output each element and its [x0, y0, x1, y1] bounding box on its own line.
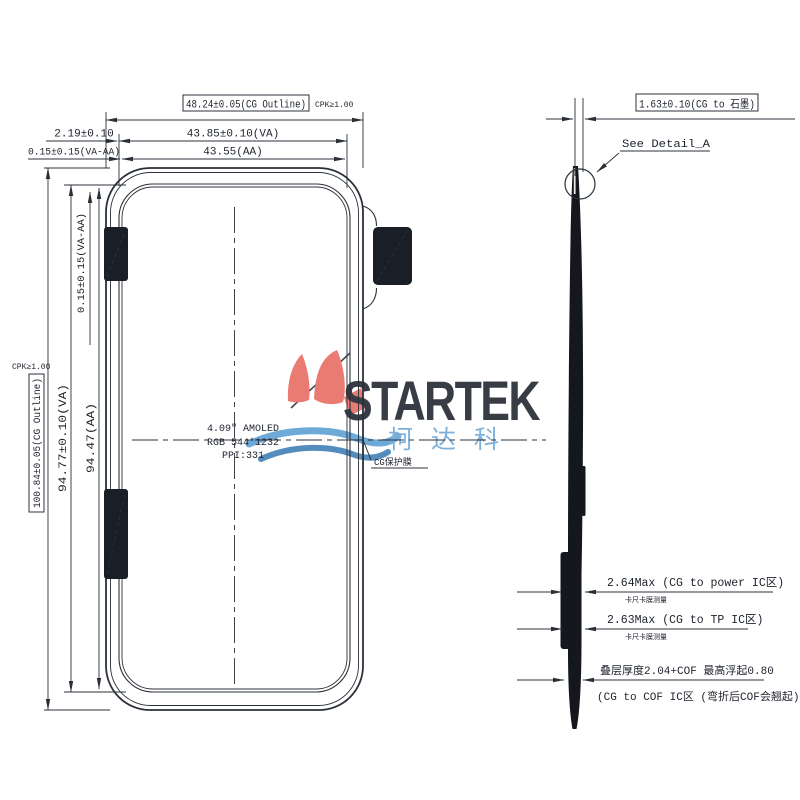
detail-a-callout: [565, 151, 710, 199]
side-view-profile: [561, 166, 586, 729]
cg-film-label: CG保护膜: [374, 456, 412, 468]
dim-va-aa-offset-top-label: 0.15±0.15(VA-AA): [28, 147, 120, 159]
dim-va-aa-offset-left-label: 0.15±0.15(VA-AA): [76, 213, 88, 313]
panel-resolution-label: RGB 544*1232: [207, 437, 279, 449]
dim-cg-graphite-label: 1.63±0.10(CG to 石墨): [639, 98, 755, 112]
note-tp-ic: 卡尺卡膜测量: [625, 632, 667, 642]
right-bump-outline-bottom: [363, 288, 377, 309]
dim-cg-va-offset-label: 2.19±0.10: [54, 129, 113, 141]
dim-power-ic-label: 2.64Max (CG to power IC区): [607, 577, 784, 590]
see-detail-label: See Detail_A: [622, 139, 710, 151]
drawing-svg: STARTEK 柯达科 48.24±0.05(CG Outli: [0, 0, 800, 800]
cpk-top-label: CPK≥1.00: [315, 101, 354, 110]
engineering-drawing-canvas: STARTEK 柯达科 48.24±0.05(CG Outli: [0, 0, 800, 800]
dim-va-height-label: 94.77±0.10(VA): [58, 384, 70, 492]
dim-cg-width-label: 48.24±0.05(CG Outline): [186, 100, 306, 112]
logo-chinese-name: 柯达科: [388, 425, 517, 454]
panel-size-label: 4.09" AMOLED: [207, 423, 279, 435]
right-bump-outline-top: [363, 206, 377, 226]
dim-cg-height-label: 100.84±0.05(CG Outline): [32, 378, 44, 508]
dim-aa-height-label: 94.47(AA): [86, 403, 98, 473]
side-profile-ic-bump: [582, 466, 586, 516]
panel-ppi-label: PPI:331: [222, 451, 264, 462]
side-profile-cof-bump: [561, 552, 571, 649]
detail-a-circle: [565, 169, 595, 199]
dim-tp-ic-label: 2.63Max (CG to TP IC区): [607, 614, 763, 627]
note-power-ic: 卡尺卡膜测量: [625, 595, 667, 605]
see-detail-leader: [597, 153, 619, 172]
dim-aa-width-label: 43.55(AA): [203, 147, 262, 159]
dim-va-width-label: 43.85±0.10(VA): [187, 129, 279, 141]
left-lower-tab: [104, 489, 128, 579]
logo-wordmark: STARTEK: [343, 369, 540, 432]
dim-cof-line1-label: 叠层厚度2.04+COF 最高浮起0.80: [600, 663, 774, 678]
cpk-left-label: CPK≥1.00: [12, 363, 51, 372]
dim-cof-line2-label: (CG to COF IC区 (弯折后COF会翘起)): [597, 689, 800, 704]
